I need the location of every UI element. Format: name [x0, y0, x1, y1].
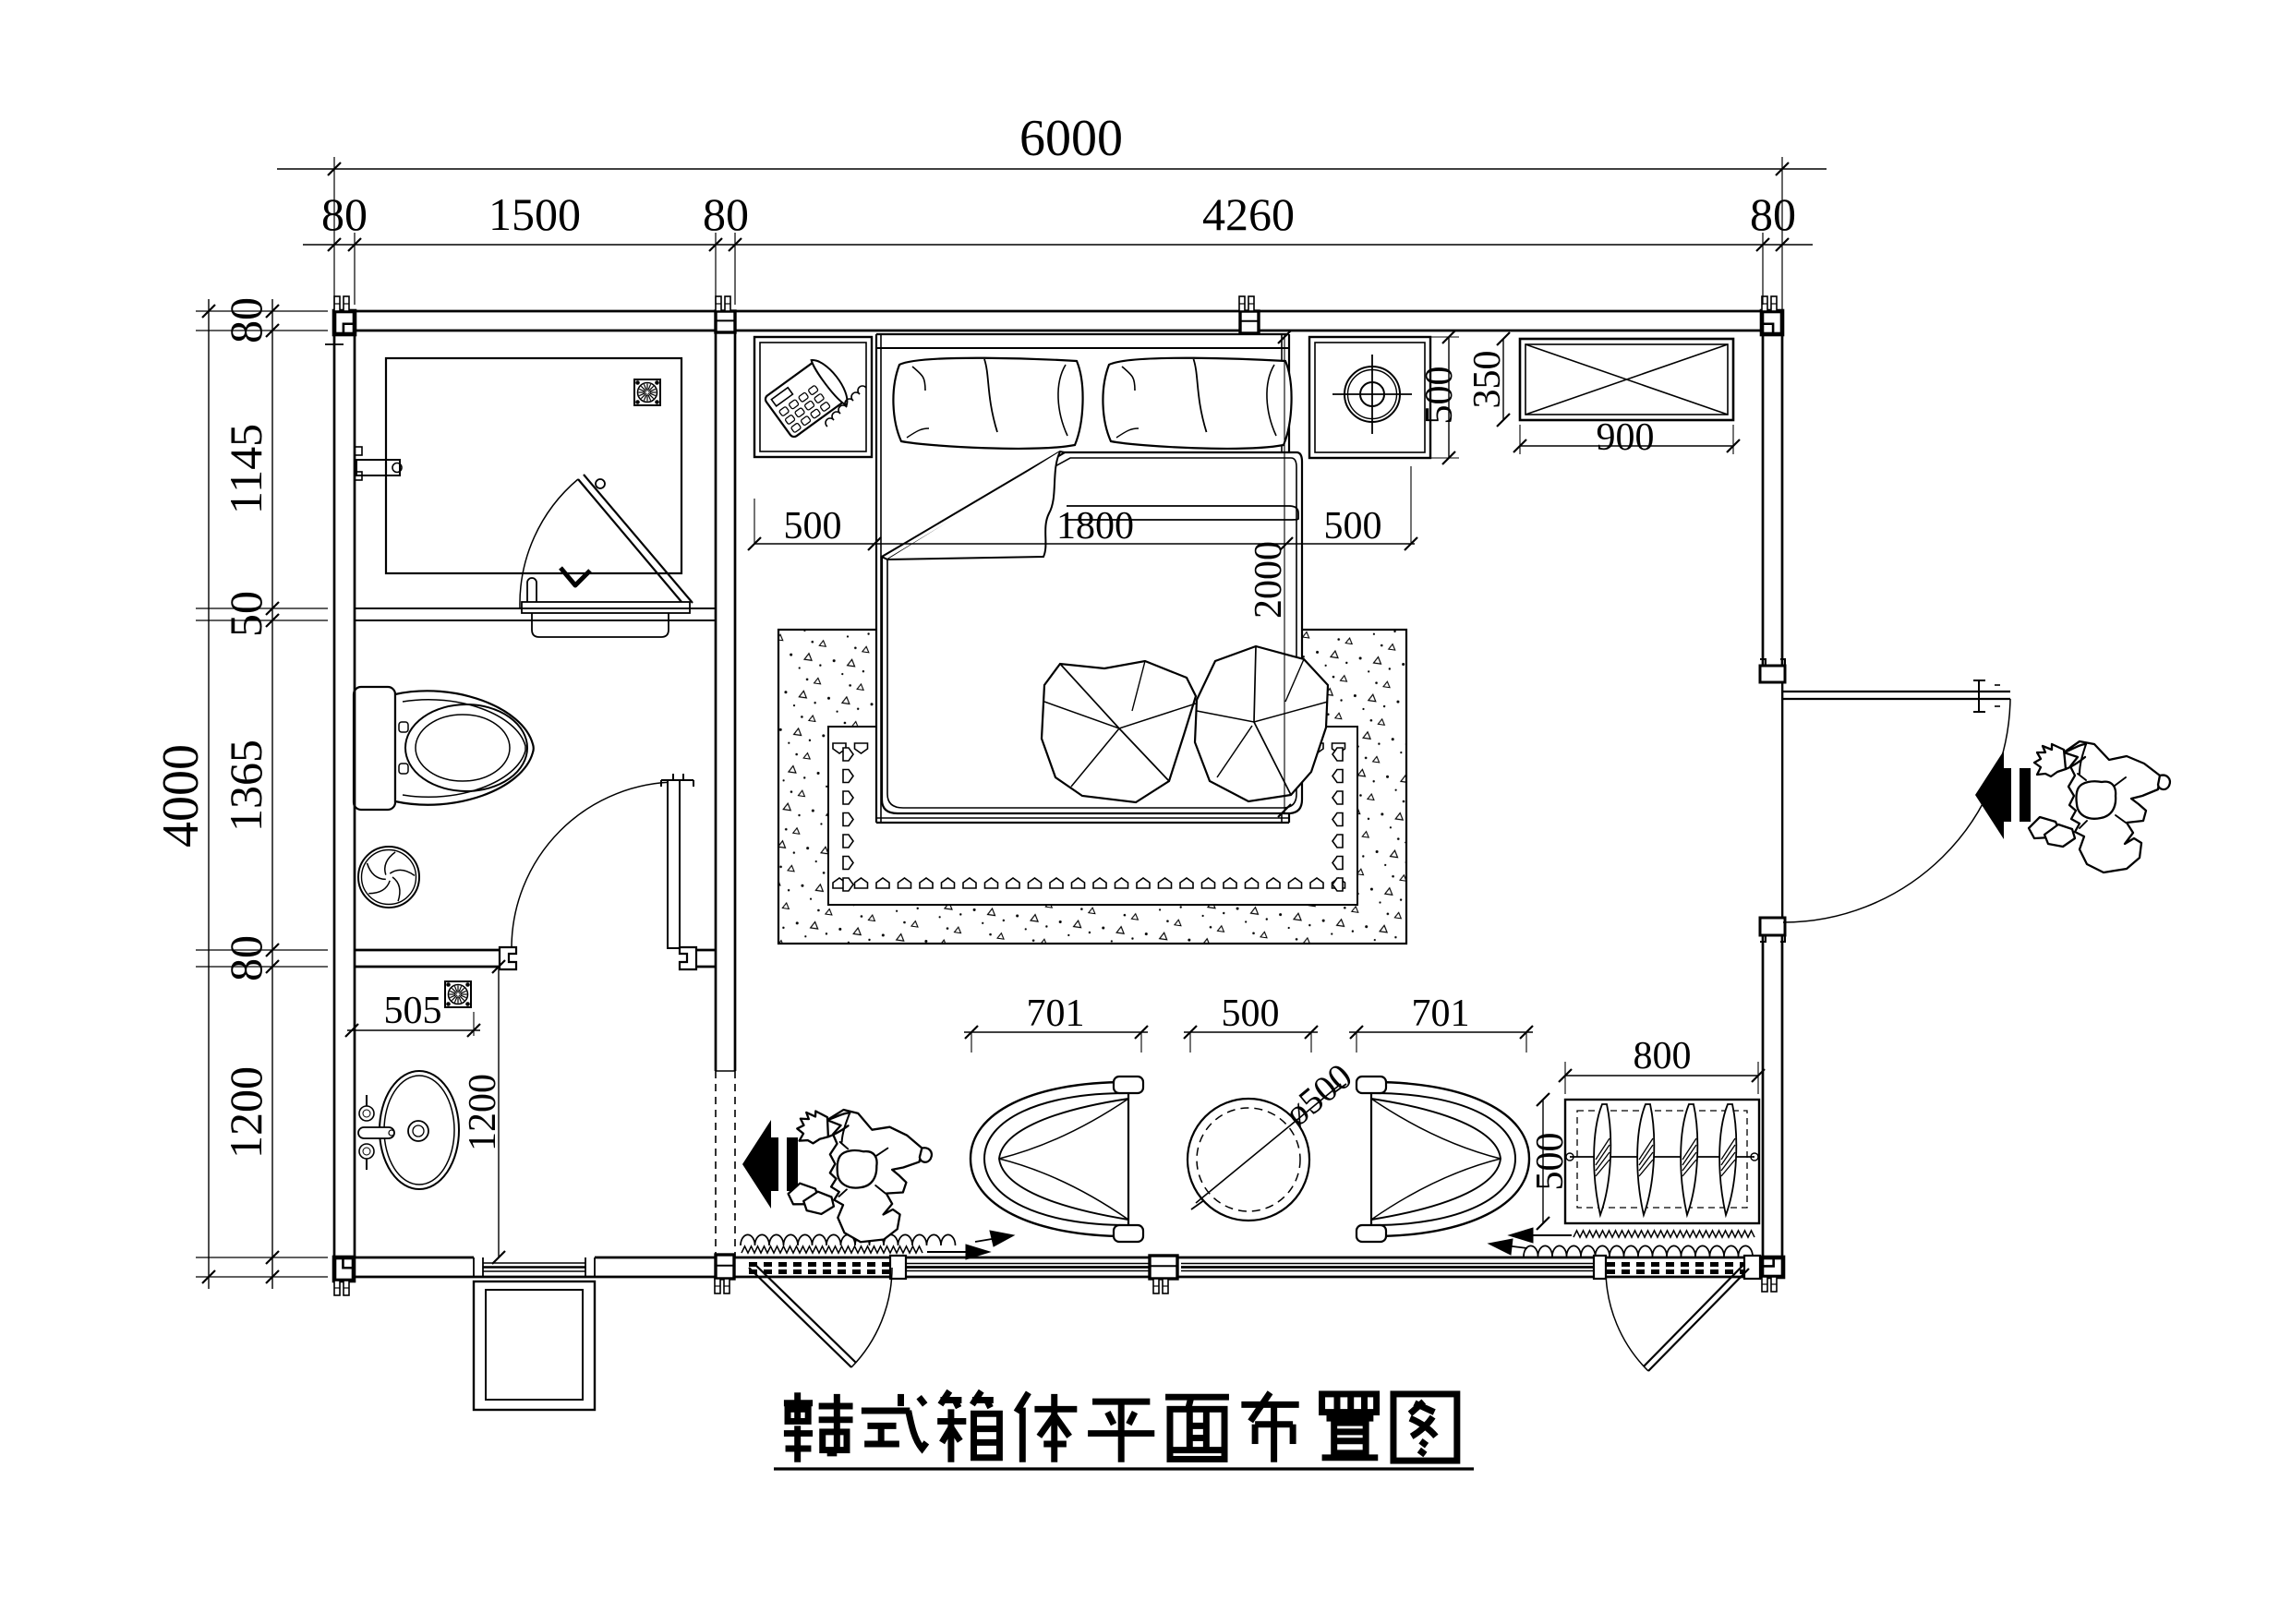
svg-text:80: 80	[220, 297, 271, 343]
svg-text:701: 701	[1412, 992, 1470, 1035]
svg-text:800: 800	[1634, 1035, 1692, 1077]
svg-text:500: 500	[1222, 992, 1280, 1035]
svg-text:1800: 1800	[1056, 505, 1134, 547]
svg-text:50: 50	[220, 591, 271, 637]
svg-text:500: 500	[1418, 367, 1461, 425]
svg-text:505: 505	[384, 990, 442, 1032]
svg-text:1200: 1200	[462, 1074, 504, 1151]
svg-text:6000: 6000	[1019, 110, 1123, 167]
svg-text:2000: 2000	[1248, 541, 1290, 619]
svg-text:4000: 4000	[152, 744, 210, 848]
svg-text:80: 80	[703, 188, 749, 240]
svg-text:900: 900	[1597, 416, 1655, 459]
svg-text:701: 701	[1027, 992, 1085, 1035]
svg-text:80: 80	[321, 188, 368, 240]
svg-text:4260: 4260	[1202, 188, 1295, 240]
svg-text:80: 80	[1750, 188, 1796, 240]
svg-text:1500: 1500	[488, 188, 581, 240]
svg-text:1200: 1200	[220, 1066, 271, 1159]
svg-text:500: 500	[1529, 1133, 1572, 1191]
svg-text:1145: 1145	[220, 424, 271, 514]
svg-text:80: 80	[220, 935, 271, 981]
svg-text:500: 500	[784, 505, 842, 547]
svg-text:1365: 1365	[220, 740, 271, 832]
svg-text:500: 500	[1324, 505, 1382, 547]
svg-text:350: 350	[1466, 351, 1509, 409]
